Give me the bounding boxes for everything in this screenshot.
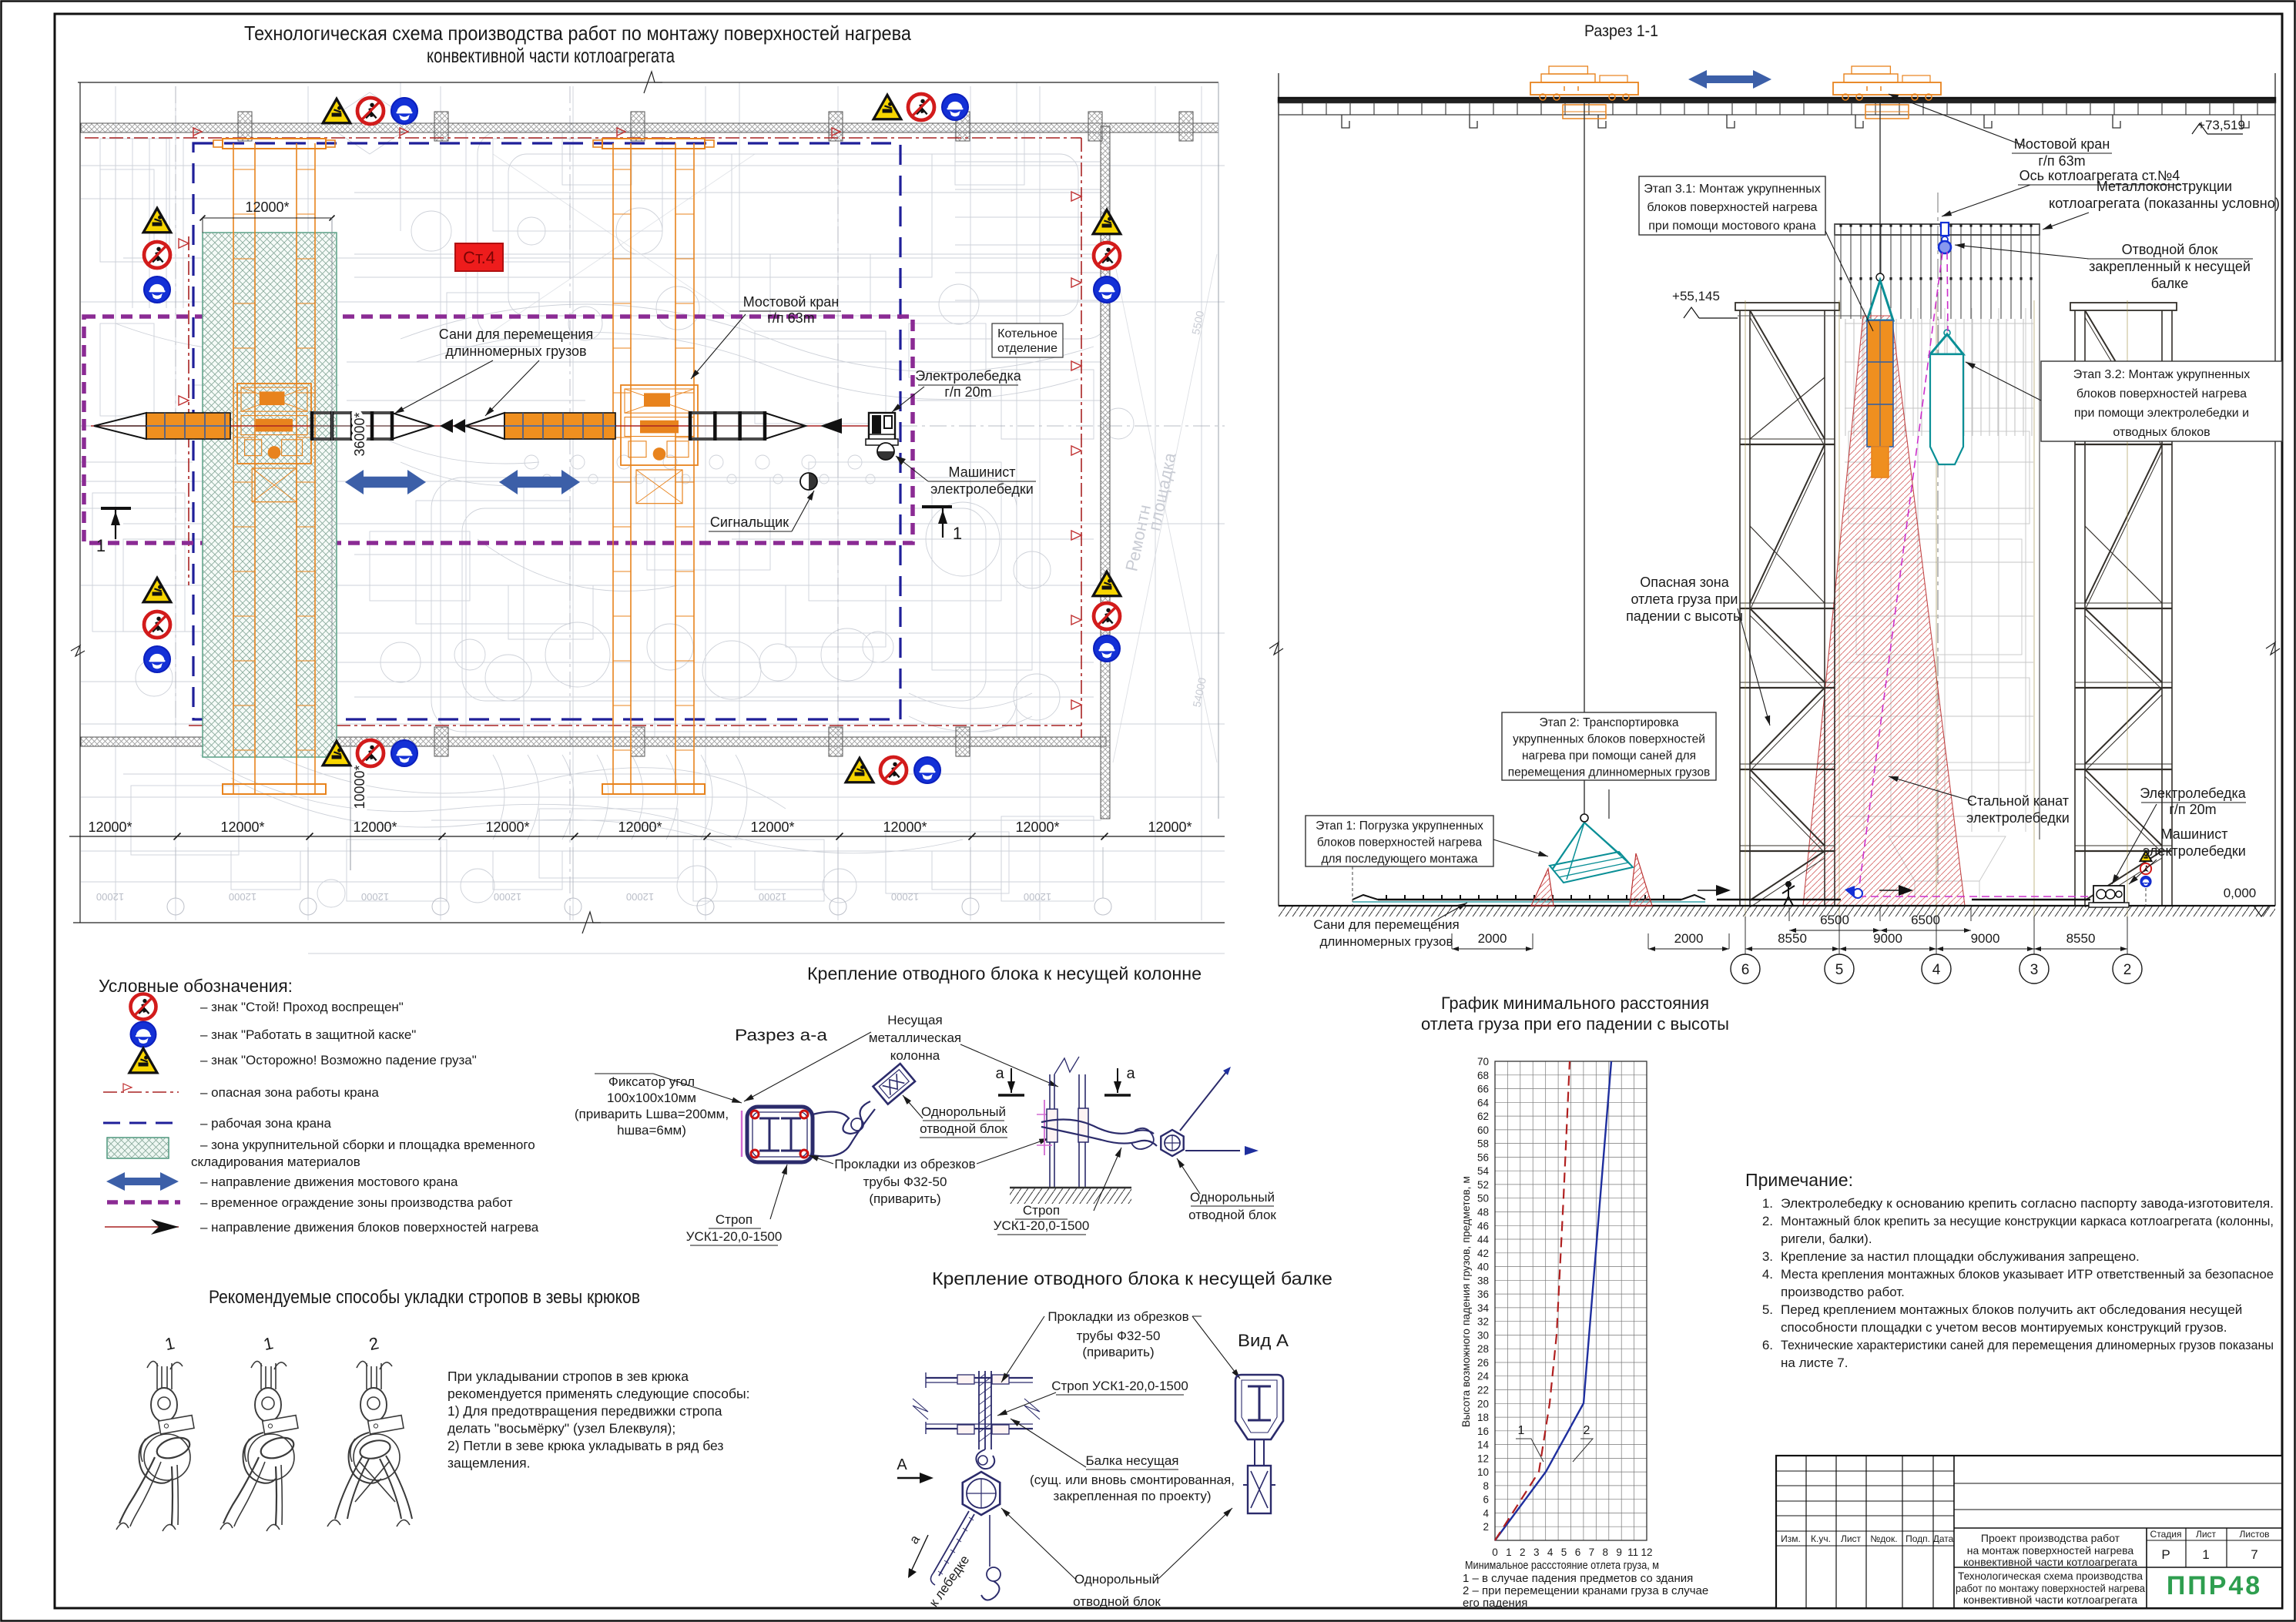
svg-text:Крепление за настил площадки о: Крепление за настил площадки обслуживани…	[1781, 1249, 2140, 1264]
svg-text:62: 62	[1477, 1111, 1489, 1122]
svg-text:Строп: Строп	[716, 1212, 752, 1227]
svg-text:2 – при перемещении кранами гр: 2 – при перемещении кранами груза в случ…	[1463, 1584, 1708, 1597]
svg-text:Строп: Строп	[1023, 1203, 1060, 1218]
svg-text:9000: 9000	[1873, 931, 1902, 946]
svg-text:на монтаж поверхностей нагрева: на монтаж поверхностей нагрева	[1967, 1544, 2134, 1557]
svg-text:Прокладки из обрезков: Прокладки из обрезков	[834, 1157, 975, 1171]
svg-text:38: 38	[1477, 1275, 1489, 1286]
svg-text:46: 46	[1477, 1220, 1489, 1232]
svg-text:44: 44	[1477, 1234, 1490, 1245]
svg-text:делать "восьмёрку" (узел Блекв: делать "восьмёрку" (узел Блеквуля);	[447, 1421, 675, 1436]
svg-text:закрепленная по проекту): закрепленная по проекту)	[1053, 1489, 1211, 1503]
svg-text:4: 4	[1932, 962, 1941, 978]
svg-text:рекомендуется применять следую: рекомендуется применять следующие способ…	[447, 1386, 749, 1402]
svg-text:1: 1	[1518, 1424, 1525, 1437]
svg-text:(приварить): (приварить)	[1082, 1345, 1154, 1359]
svg-text:– знак "Работать в защитной к: – знак "Работать в защитной каске"	[200, 1027, 416, 1042]
svg-text:УСК1-20,0-1500: УСК1-20,0-1500	[994, 1218, 1090, 1233]
svg-text:1: 1	[953, 524, 962, 543]
svg-text:6500: 6500	[1820, 913, 1849, 927]
svg-text:– направление движения блоков: – направление движения блоков поверхност…	[200, 1220, 539, 1235]
svg-text:Лист: Лист	[1841, 1533, 1862, 1544]
svg-text:10: 10	[1477, 1466, 1489, 1478]
svg-text:длинномерных грузов: длинномерных грузов	[1319, 934, 1453, 949]
svg-text:Стадия: Стадия	[2150, 1529, 2182, 1540]
svg-text:г/п 20m: г/п 20m	[944, 384, 991, 400]
svg-text:8550: 8550	[1778, 931, 1807, 946]
svg-text:(приварить Lшва=200мм,: (приварить Lшва=200мм,	[575, 1107, 729, 1121]
svg-text:58: 58	[1477, 1138, 1489, 1150]
svg-text:ППР48: ППР48	[2167, 1571, 2262, 1600]
svg-text:Отводной блок: Отводной блок	[2122, 242, 2218, 257]
svg-text:12000*: 12000*	[88, 819, 132, 835]
svg-text:а: а	[995, 1065, 1004, 1082]
svg-text:Этап 3.1: Монтаж укрупненных: Этап 3.1: Монтаж укрупненных	[1644, 183, 1821, 196]
svg-text:его падения: его падения	[1463, 1597, 1527, 1610]
svg-text:64: 64	[1477, 1097, 1490, 1108]
svg-text:блоков поверхностей нагрева: блоков поверхностей нагрева	[1647, 201, 1817, 214]
svg-text:24: 24	[1477, 1371, 1490, 1382]
svg-text:Однорольный: Однорольный	[1190, 1190, 1275, 1205]
svg-text:Высота возможного падения груз: Высота возможного падения грузов, предме…	[1460, 1176, 1472, 1427]
svg-text:5.: 5.	[1762, 1302, 1773, 1317]
svg-text:14: 14	[1477, 1439, 1490, 1451]
svg-text:40: 40	[1477, 1262, 1489, 1273]
svg-text:+73,519: +73,519	[2197, 118, 2245, 132]
svg-text:на листе 7.: на листе 7.	[1781, 1356, 1848, 1370]
svg-text:отлета груза при его падении с: отлета груза при его падении с высоты	[1421, 1014, 1729, 1034]
svg-text:конвективной части котлоагрега: конвективной части котлоагрегата	[1963, 1556, 2137, 1568]
svg-text:Листов: Листов	[2240, 1529, 2270, 1540]
svg-text:Электролебедка: Электролебедка	[2140, 786, 2247, 801]
svg-text:Машинист: Машинист	[949, 464, 1016, 480]
svg-text:– временное ограждение зоны п: – временное ограждение зоны производства…	[200, 1195, 513, 1210]
svg-text:Разрез 1-1: Разрез 1-1	[1584, 22, 1658, 40]
svg-text:Машинист: Машинист	[2161, 826, 2228, 842]
svg-text:Строп УСК1-20,0-1500: Строп УСК1-20,0-1500	[1051, 1379, 1188, 1393]
svg-text:hшва=6мм): hшва=6мм)	[617, 1123, 686, 1138]
svg-text:– знак "Осторожно! Возможно п: – знак "Осторожно! Возможно падение груз…	[200, 1053, 477, 1067]
svg-text:12: 12	[1477, 1453, 1489, 1464]
svg-text:12000*: 12000*	[485, 819, 529, 835]
svg-text:отлета груза при: отлета груза при	[1631, 591, 1738, 607]
svg-text:70: 70	[1477, 1056, 1489, 1067]
svg-text:колонна: колонна	[890, 1048, 940, 1063]
svg-text:5: 5	[1835, 962, 1844, 978]
svg-text:1: 1	[2202, 1547, 2209, 1562]
svg-text:6: 6	[1741, 962, 1750, 978]
svg-text:конвективной части котлоагрега: конвективной части котлоагрегата	[427, 44, 675, 67]
svg-text:56: 56	[1477, 1151, 1489, 1163]
svg-text:Лист: Лист	[2196, 1529, 2217, 1540]
svg-text:20: 20	[1477, 1398, 1489, 1409]
svg-text:12000*: 12000*	[353, 819, 397, 835]
svg-text:Монтажный блок крепить за несу: Монтажный блок крепить за несущие констр…	[1781, 1214, 2274, 1228]
svg-text:2.: 2.	[1762, 1214, 1773, 1228]
svg-text:Прокладки из обрезков: Прокладки из обрезков	[1047, 1309, 1188, 1324]
svg-text:Вид А: Вид А	[1238, 1331, 1289, 1350]
svg-text:длинномерных грузов: длинномерных грузов	[445, 344, 586, 359]
svg-text:отводной блок: отводной блок	[1073, 1594, 1161, 1609]
svg-text:закрепленный к несущей: закрепленный к несущей	[2089, 259, 2251, 274]
svg-text:падении с высоты: падении с высоты	[1626, 608, 1743, 624]
svg-text:6: 6	[1575, 1547, 1581, 1558]
svg-text:1: 1	[96, 536, 106, 555]
svg-text:Минимальное рассстояние отлета: Минимальное рассстояние отлета груза, м	[1465, 1559, 1659, 1572]
svg-text:Мостовой кран: Мостовой кран	[2014, 136, 2110, 152]
svg-text:Сани для перемещения: Сани для перемещения	[439, 327, 594, 342]
svg-text:1.: 1.	[1762, 1196, 1773, 1211]
svg-text:отводных блоков: отводных блоков	[2113, 426, 2210, 439]
svg-text:Электролебедка: Электролебедка	[915, 368, 1022, 384]
svg-text:12000: 12000	[626, 891, 654, 903]
svg-text:Крепление отводного блока к не: Крепление отводного блока к несущей балк…	[932, 1268, 1332, 1289]
svg-text:66: 66	[1477, 1084, 1489, 1095]
svg-text:8550: 8550	[2066, 931, 2096, 946]
svg-text:нагрева при помощи саней для: нагрева при помощи саней для	[1522, 749, 1696, 762]
svg-text:отделение: отделение	[997, 342, 1058, 355]
svg-text:укрупненных блоков поверхносте: укрупненных блоков поверхностей	[1513, 733, 1705, 746]
svg-text:2: 2	[1584, 1424, 1590, 1437]
svg-text:Этап 3.2: Монтаж укрупненных: Этап 3.2: Монтаж укрупненных	[2073, 368, 2251, 381]
svg-text:2) Петли в зеве крюка укладыва: 2) Петли в зеве крюка укладывать в ряд б…	[447, 1438, 723, 1453]
svg-text:Изм.: Изм.	[1781, 1533, 1801, 1544]
svg-text:– опасная зона работы крана: – опасная зона работы крана	[200, 1085, 379, 1100]
svg-text:График минимального расстояния: График минимального расстояния	[1441, 994, 1709, 1013]
svg-text:защемления.: защемления.	[447, 1456, 530, 1471]
svg-text:при помощи электролебедки и: при помощи электролебедки и	[2074, 407, 2249, 420]
svg-text:4.: 4.	[1762, 1267, 1773, 1282]
svg-text:3: 3	[1533, 1547, 1540, 1558]
svg-text:34: 34	[1477, 1302, 1490, 1314]
svg-text:г/п 20m: г/п 20m	[2169, 802, 2216, 817]
svg-text:При укладывании стропов в зев: При укладывании стропов в зев крюка	[447, 1369, 689, 1384]
svg-text:36000*: 36000*	[352, 412, 367, 456]
svg-text:52: 52	[1477, 1179, 1489, 1191]
svg-text:блоков поверхностей нагрева: блоков поверхностей нагрева	[1317, 836, 1483, 849]
svg-text:балке: балке	[2151, 276, 2189, 291]
svg-text:100х100х10мм: 100х100х10мм	[607, 1091, 696, 1105]
svg-text:36: 36	[1477, 1289, 1489, 1300]
svg-text:Условные обозначения:: Условные обозначения:	[99, 976, 293, 996]
svg-text:Стальной канат: Стальной канат	[1967, 793, 2069, 809]
svg-text:электролебедки: электролебедки	[1966, 810, 2070, 826]
svg-text:26: 26	[1477, 1357, 1489, 1369]
svg-text:Мостовой кран: Мостовой кран	[743, 294, 840, 310]
svg-text:– направление движения мостов: – направление движения мостового крана	[200, 1175, 458, 1189]
svg-text:50: 50	[1477, 1193, 1489, 1205]
svg-text:Несущая: Несущая	[887, 1013, 942, 1027]
svg-text:Примечание:: Примечание:	[1745, 1170, 1853, 1190]
svg-text:блоков поверхностей нагрева: блоков поверхностей нагрева	[2076, 387, 2247, 400]
svg-text:при помощи мостового крана: при помощи мостового крана	[1648, 220, 1816, 233]
svg-text:12000*: 12000*	[883, 819, 927, 835]
svg-text:способности площадки с учетом: способности площадки с учетом весов монт…	[1781, 1320, 2227, 1335]
svg-text:12000: 12000	[361, 891, 389, 903]
svg-text:трубы Ф32-50: трубы Ф32-50	[1077, 1329, 1161, 1343]
svg-text:7: 7	[1589, 1547, 1595, 1558]
svg-text:2000: 2000	[1478, 931, 1507, 946]
svg-text:12000*: 12000*	[220, 819, 264, 835]
svg-text:6: 6	[1483, 1494, 1489, 1506]
svg-text:32: 32	[1477, 1316, 1489, 1328]
svg-text:отводной блок: отводной блок	[1188, 1208, 1276, 1222]
svg-text:12000: 12000	[96, 891, 124, 903]
svg-text:производство работ.: производство работ.	[1781, 1285, 1905, 1299]
svg-text:3.: 3.	[1762, 1249, 1773, 1264]
svg-text:4: 4	[1483, 1507, 1489, 1519]
svg-text:электролебедки: электролебедки	[2143, 843, 2246, 859]
svg-text:4: 4	[1547, 1547, 1554, 1558]
svg-text:Технологическая схема производ: Технологическая схема производства	[1958, 1570, 2143, 1582]
svg-text:12000: 12000	[494, 891, 521, 903]
svg-text:Этап 1: Погрузка укрупненных: Этап 1: Погрузка укрупненных	[1316, 819, 1483, 833]
svg-text:Опасная зона: Опасная зона	[1640, 575, 1729, 590]
svg-text:22: 22	[1477, 1385, 1489, 1396]
svg-text:6500: 6500	[1911, 913, 1940, 927]
svg-text:трубы Ф32-50: трубы Ф32-50	[863, 1175, 947, 1189]
svg-text:8: 8	[1603, 1547, 1609, 1558]
svg-text:(приварить): (приварить)	[869, 1191, 940, 1206]
svg-text:ригели, балки).: ригели, балки).	[1781, 1232, 1872, 1246]
svg-text:а: а	[1126, 1065, 1135, 1082]
svg-text:перемещения длинномерных грузо: перемещения длинномерных грузов	[1508, 766, 1710, 779]
svg-text:Сигнальщик: Сигнальщик	[710, 514, 789, 530]
svg-text:№док.: №док.	[1870, 1533, 1897, 1544]
svg-text:11: 11	[1627, 1547, 1638, 1558]
svg-text:Электролебедку к основанию кре: Электролебедку к основанию крепить согла…	[1781, 1196, 2274, 1211]
svg-text:12000: 12000	[229, 891, 256, 903]
svg-text:2: 2	[1520, 1547, 1526, 1558]
svg-text:Места крепления монтажных блок: Места крепления монтажных блоков указыва…	[1781, 1267, 2274, 1282]
svg-text:металлическая: металлическая	[869, 1031, 961, 1045]
svg-text:Этап 2: Транспортировка: Этап 2: Транспортировка	[1539, 716, 1678, 729]
svg-text:+55,145: +55,145	[1672, 289, 1720, 303]
svg-text:Технологическая схема производ: Технологическая схема производства работ…	[244, 22, 911, 45]
svg-text:Однорольный: Однорольный	[1074, 1572, 1159, 1587]
svg-text:28: 28	[1477, 1343, 1489, 1355]
svg-text:7: 7	[2251, 1547, 2257, 1562]
svg-text:(сущ. или вновь смонтированная: (сущ. или вновь смонтированная,	[1030, 1473, 1235, 1487]
svg-text:0,000: 0,000	[2224, 886, 2257, 900]
svg-text:12000*: 12000*	[1148, 819, 1192, 835]
svg-text:0: 0	[1492, 1547, 1498, 1558]
svg-text:А: А	[897, 1456, 907, 1473]
svg-text:– рабочая зона крана: – рабочая зона крана	[200, 1116, 332, 1131]
svg-text:складирования материалов: складирования материалов	[191, 1155, 360, 1169]
svg-text:1) Для предотвращения передвиж: 1) Для предотвращения передвижки стропа	[447, 1403, 722, 1419]
svg-text:1 – в случае падения предметов: 1 – в случае падения предметов со здания	[1463, 1572, 1693, 1585]
svg-text:6.: 6.	[1762, 1338, 1773, 1352]
svg-text:54: 54	[1477, 1165, 1490, 1177]
svg-text:1: 1	[1506, 1547, 1512, 1558]
svg-text:12000*: 12000*	[618, 819, 662, 835]
svg-text:электролебедки: электролебедки	[930, 481, 1034, 497]
svg-text:18: 18	[1477, 1412, 1489, 1423]
svg-text:3: 3	[2030, 962, 2039, 978]
svg-text:Балка несущая: Балка несущая	[1085, 1453, 1178, 1468]
svg-text:8: 8	[1483, 1480, 1489, 1492]
svg-text:К.уч.: К.уч.	[1811, 1533, 1831, 1544]
svg-text:12000*: 12000*	[1015, 819, 1059, 835]
svg-text:60: 60	[1477, 1124, 1489, 1136]
svg-text:16: 16	[1477, 1426, 1489, 1437]
svg-text:конвективной части котлоагрега: конвективной части котлоагрегата	[1963, 1594, 2137, 1606]
svg-text:12000*: 12000*	[245, 199, 289, 215]
svg-text:9: 9	[1616, 1547, 1622, 1558]
svg-text:Фиксатор угол: Фиксатор угол	[608, 1074, 695, 1089]
svg-text:48: 48	[1477, 1206, 1489, 1218]
svg-text:для последующего монтажа: для последующего монтажа	[1321, 853, 1477, 866]
svg-text:12: 12	[1641, 1547, 1652, 1558]
svg-text:Дата: Дата	[1933, 1533, 1954, 1544]
svg-text:Крепление отводного блока к не: Крепление отводного блока к несущей коло…	[807, 963, 1202, 984]
svg-text:2: 2	[2123, 962, 2132, 978]
svg-text:9000: 9000	[1971, 931, 2000, 946]
svg-text:2: 2	[1483, 1521, 1489, 1533]
svg-text:Подп.: Подп.	[1906, 1533, 1930, 1544]
svg-text:30: 30	[1477, 1329, 1489, 1341]
svg-text:– знак "Стой! Проход воспреще: – знак "Стой! Проход воспрещен"	[200, 1000, 404, 1014]
svg-text:Ст.4: Ст.4	[463, 248, 495, 267]
svg-text:12000: 12000	[1024, 891, 1051, 903]
svg-text:Технические характеристики сан: Технические характеристики саней для пер…	[1781, 1338, 2274, 1352]
svg-text:12000: 12000	[759, 891, 786, 903]
svg-text:Перед креплением монтажных бло: Перед креплением монтажных блоков получи…	[1781, 1302, 2242, 1317]
svg-text:5: 5	[1561, 1547, 1567, 1558]
svg-text:10000*: 10000*	[352, 765, 367, 809]
svg-text:УСК1-20,0-1500: УСК1-20,0-1500	[686, 1229, 783, 1244]
svg-text:2000: 2000	[1674, 931, 1704, 946]
svg-text:Проект производства работ: Проект производства работ	[1981, 1532, 2120, 1544]
svg-text:12000*: 12000*	[750, 819, 794, 835]
svg-text:42: 42	[1477, 1248, 1489, 1259]
svg-text:Металлоконструкции: Металлоконструкции	[2097, 179, 2232, 194]
svg-text:Разрез а-а: Разрез а-а	[735, 1027, 827, 1044]
svg-text:Рекомендуемые способы укладки: Рекомендуемые способы укладки стропов в …	[209, 1287, 640, 1308]
svg-text:Однорольный: Однорольный	[921, 1104, 1006, 1119]
svg-text:– зона укрупнительной сборки: – зона укрупнительной сборки и площадка …	[200, 1138, 535, 1152]
svg-text:котлоагрегата (показанны услов: котлоагрегата (показанны условно)	[2049, 196, 2280, 211]
svg-text:Котельное: Котельное	[997, 327, 1058, 340]
svg-text:68: 68	[1477, 1070, 1489, 1081]
svg-text:г/п 63m: г/п 63m	[2038, 153, 2085, 169]
svg-text:12000: 12000	[891, 891, 919, 903]
svg-text:отводной блок: отводной блок	[920, 1121, 1007, 1136]
svg-text:работ по монтажу поверхностей: работ по монтажу поверхностей нагрева	[1956, 1582, 2145, 1594]
svg-text:Р: Р	[2161, 1547, 2170, 1562]
svg-text:г/п 63m: г/п 63m	[767, 310, 814, 326]
